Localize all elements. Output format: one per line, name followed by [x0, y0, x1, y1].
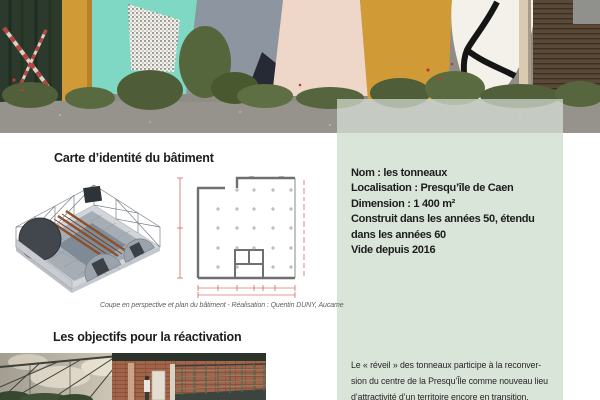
info-panel: Nom : les tonneaux Localisation : Presqu…: [337, 133, 563, 400]
paragraph-line: d’attractivité d’un territoire encore en…: [351, 390, 553, 400]
building-dimension: Dimension : 1 400 m²: [351, 197, 553, 212]
building-vacancy: Vide depuis 2016: [351, 243, 553, 258]
paragraph-line: Le « réveil » des tonneaux participe à l…: [351, 358, 553, 374]
building-location: Localisation : Presqu’île de Caen: [351, 181, 553, 196]
reactivation-paragraph: Le « réveil » des tonneaux participe à l…: [351, 358, 553, 400]
building-construction-line2: dans les années 60: [351, 228, 553, 243]
building-3d-drawing: [8, 183, 166, 298]
reactivation-render-photo: [0, 353, 266, 400]
drawing-caption: Coupe en perspective et plan du bâtiment…: [100, 302, 312, 309]
page: Nom : les tonneaux Localisation : Presqu…: [0, 0, 600, 400]
info-panel-photo-overlay: [337, 99, 563, 133]
objectives-section-title: Les objectifs pour la réactivation: [53, 330, 241, 344]
building-name: Nom : les tonneaux: [351, 166, 553, 181]
paragraph-line: sion du centre de la Presqu’Île comme no…: [351, 374, 553, 390]
building-construction-line1: Construit dans les années 50, étendu: [351, 212, 553, 227]
floor-plan-drawing: [171, 176, 311, 308]
identity-section-title: Carte d’identité du bâtiment: [54, 151, 214, 165]
